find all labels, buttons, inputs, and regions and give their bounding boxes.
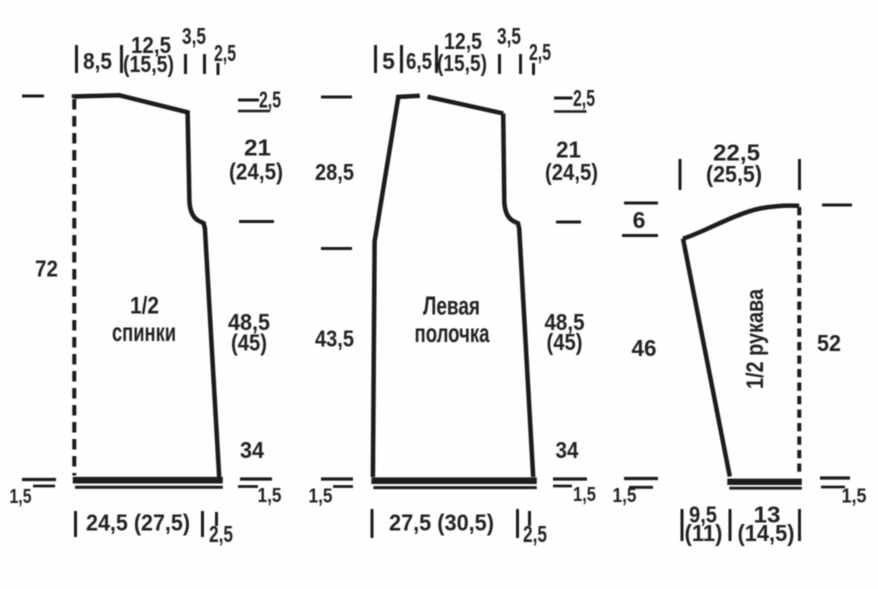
svg-text:2,5: 2,5: [214, 40, 236, 66]
svg-text:(15,5): (15,5): [123, 51, 174, 77]
svg-text:6: 6: [633, 207, 646, 233]
svg-text:(15,5): (15,5): [437, 50, 487, 76]
svg-text:1,5: 1,5: [309, 486, 333, 508]
svg-text:24,5 (27,5): 24,5 (27,5): [86, 510, 190, 536]
svg-text:1/2: 1/2: [130, 293, 159, 320]
svg-text:2,5: 2,5: [259, 87, 281, 113]
svg-text:спинки: спинки: [112, 317, 176, 347]
svg-text:21: 21: [244, 135, 271, 161]
svg-text:(14,5): (14,5): [738, 520, 795, 546]
svg-text:1,5: 1,5: [258, 485, 282, 507]
svg-text:52: 52: [817, 330, 841, 356]
svg-text:34: 34: [556, 437, 579, 463]
svg-text:34: 34: [240, 437, 264, 463]
svg-text:(24,5): (24,5): [545, 159, 598, 185]
svg-text:1,5: 1,5: [573, 484, 596, 506]
svg-text:72: 72: [35, 256, 58, 282]
svg-text:27,5 (30,5): 27,5 (30,5): [389, 510, 494, 536]
svg-text:3,5: 3,5: [182, 23, 206, 49]
svg-text:8,5: 8,5: [83, 48, 112, 74]
svg-text:2,5: 2,5: [523, 521, 547, 547]
svg-text:2,5: 2,5: [573, 85, 595, 111]
svg-text:5: 5: [382, 48, 395, 74]
svg-text:1,5: 1,5: [842, 486, 867, 508]
svg-text:(24,5): (24,5): [229, 159, 283, 185]
svg-text:2,5: 2,5: [529, 39, 551, 65]
svg-text:46: 46: [632, 335, 657, 361]
svg-text:полочка: полочка: [415, 318, 490, 348]
svg-text:Левая: Левая: [423, 291, 480, 321]
svg-text:43,5: 43,5: [315, 326, 354, 352]
svg-text:6,5: 6,5: [406, 48, 432, 74]
svg-text:1,5: 1,5: [613, 485, 637, 507]
svg-text:(45): (45): [231, 330, 267, 356]
svg-text:(45): (45): [547, 329, 583, 355]
svg-text:(25,5): (25,5): [706, 161, 762, 187]
svg-text:1/2 рукава: 1/2 рукава: [742, 288, 769, 389]
svg-text:1,5: 1,5: [10, 486, 32, 508]
svg-text:2,5: 2,5: [209, 521, 233, 547]
svg-text:28,5: 28,5: [315, 159, 354, 185]
svg-text:3,5: 3,5: [497, 23, 521, 49]
svg-text:(11): (11): [685, 520, 723, 546]
